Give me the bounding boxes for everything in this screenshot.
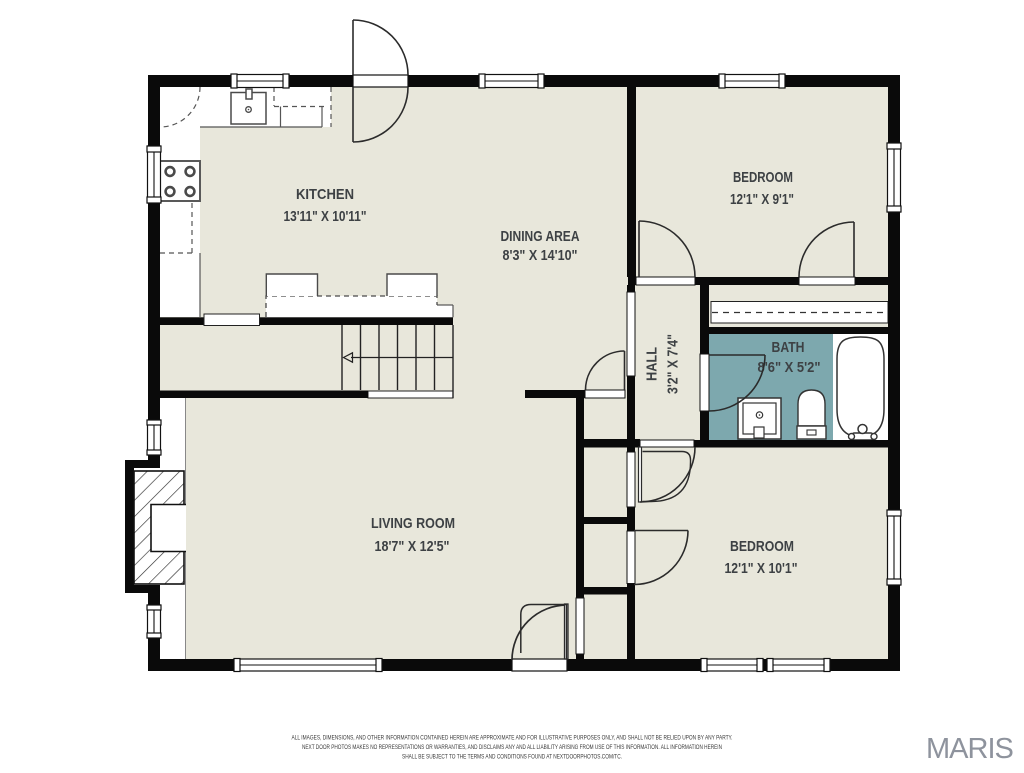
svg-text:NEXT DOOR PHOTOS MAKES NO REPR: NEXT DOOR PHOTOS MAKES NO REPRESENTATION…	[302, 744, 722, 751]
svg-text:HALL: HALL	[644, 347, 661, 381]
svg-text:ALL IMAGES, DIMENSIONS, AND OT: ALL IMAGES, DIMENSIONS, AND OTHER INFORM…	[292, 735, 733, 742]
svg-text:LIVING ROOM: LIVING ROOM	[371, 515, 455, 532]
svg-text:12'1" X 10'1": 12'1" X 10'1"	[725, 560, 798, 577]
svg-text:MARIS: MARIS	[926, 733, 1014, 765]
svg-text:BEDROOM: BEDROOM	[733, 169, 793, 186]
svg-text:BEDROOM: BEDROOM	[730, 538, 794, 555]
svg-text:SHALL BE SUBJECT TO THE TERMS: SHALL BE SUBJECT TO THE TERMS AND CONDIT…	[402, 754, 622, 761]
svg-text:DINING AREA: DINING AREA	[501, 228, 580, 245]
svg-text:3'2" X 7'4": 3'2" X 7'4"	[665, 334, 682, 394]
svg-text:12'1" X 9'1": 12'1" X 9'1"	[730, 191, 794, 208]
svg-text:13'11" X 10'11": 13'11" X 10'11"	[284, 208, 367, 225]
svg-text:18'7" X 12'5": 18'7" X 12'5"	[375, 538, 450, 555]
svg-text:KITCHEN: KITCHEN	[296, 186, 354, 203]
svg-text:BATH: BATH	[772, 339, 805, 356]
svg-text:8'3" X 14'10": 8'3" X 14'10"	[503, 247, 578, 264]
svg-text:8'6" X 5'2": 8'6" X 5'2"	[758, 359, 821, 376]
